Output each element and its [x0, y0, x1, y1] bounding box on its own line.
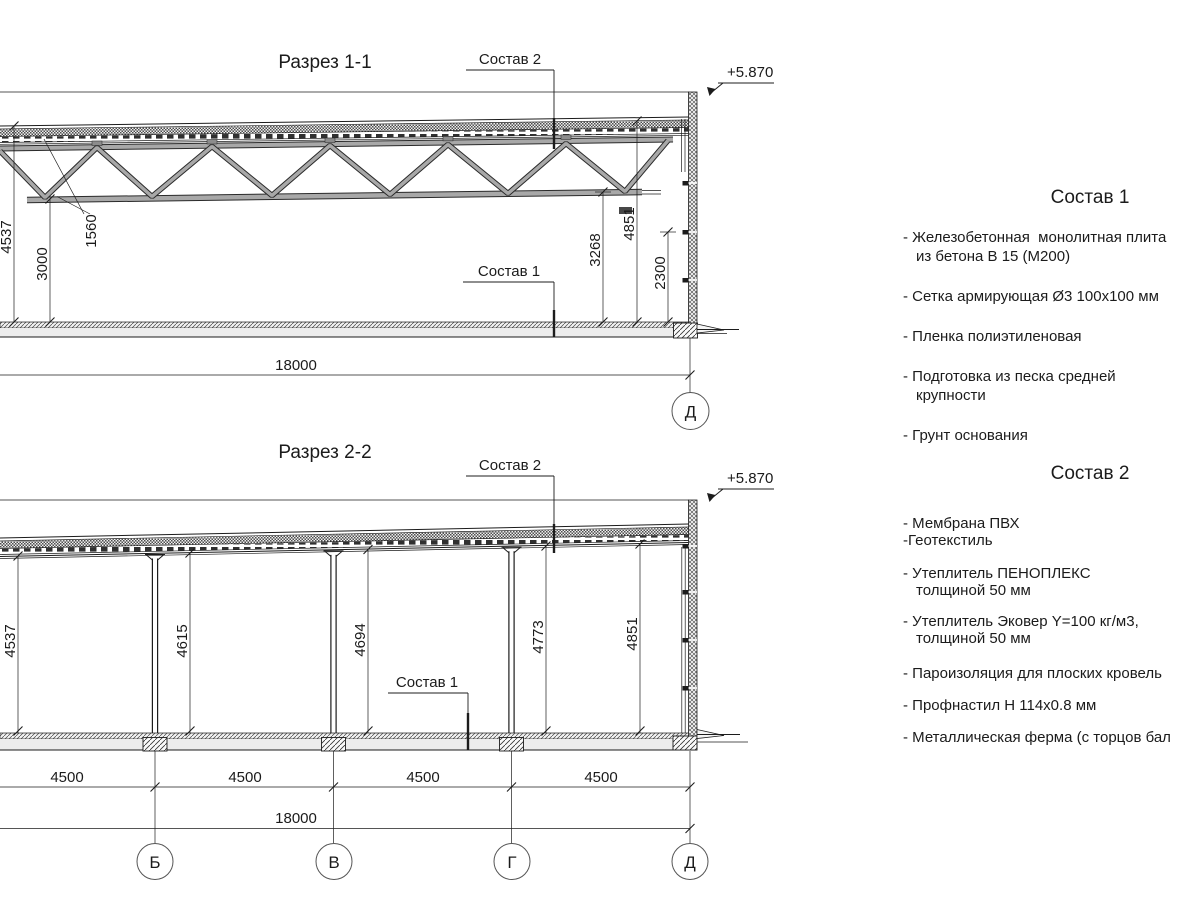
material-item: - Железобетонная монолитная плита из бет…: [903, 228, 1200, 266]
material-item: - Мембрана ПВХ -Геотекстиль: [903, 515, 1200, 549]
material-item: - Подготовка из песка средней крупности: [903, 367, 1200, 405]
material-item: - Утеплитель ПЕНОПЛЕКС толщиной 50 мм: [903, 565, 1200, 599]
sostav2-title: Состав 2: [1051, 463, 1130, 485]
material-item: - Грунт основания: [903, 426, 1200, 445]
sostav2-list: - Мембрана ПВХ -Геотекстиль - Утеплитель…: [903, 515, 1200, 746]
material-item: - Сетка армирующая Ø3 100x100 мм: [903, 287, 1200, 306]
material-item: - Утеплитель Эковер Y=100 кг/м3, толщино…: [903, 613, 1200, 647]
sostav1-list: - Железобетонная монолитная плита из бет…: [903, 228, 1200, 445]
drawing-sheet: Разрез 1-1: [0, 0, 1200, 900]
material-item: - Профнастил Н 114х0.8 мм: [903, 697, 1200, 714]
material-lists: Состав 1 - Железобетонная монолитная пли…: [0, 0, 1200, 900]
material-item: - Металлическая ферма (с торцов бал: [903, 729, 1200, 746]
sostav1-title: Состав 1: [1051, 187, 1130, 209]
material-item: - Пароизоляция для плоских кровель: [903, 665, 1200, 682]
material-item: - Пленка полиэтиленовая: [903, 327, 1200, 346]
